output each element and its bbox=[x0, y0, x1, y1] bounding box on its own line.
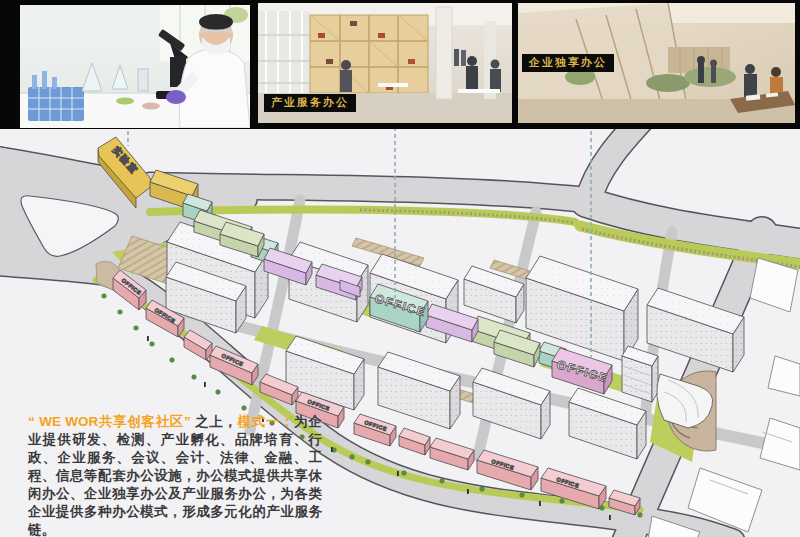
description-highlight-mode: 模式一： bbox=[238, 414, 295, 429]
glove bbox=[166, 90, 186, 104]
wooden-shelf-unit bbox=[310, 15, 428, 93]
greenery bbox=[646, 74, 690, 92]
service-office-label: 产业服务办公 bbox=[264, 94, 356, 112]
test-tube-rack bbox=[28, 87, 84, 121]
service-office-photo: 产业服务办公 bbox=[258, 3, 512, 123]
page: 实验室 bbox=[0, 0, 800, 537]
description-text: “ WE WOR共享创客社区” 之上，模式一：为企业提供研发、检测、产业孵化、品… bbox=[28, 413, 322, 537]
photo-band: 产业服务办公 企业独享办公 bbox=[0, 0, 800, 129]
exclusive-office-photo: 企业独享办公 bbox=[518, 3, 795, 123]
description-connector: 之上， bbox=[191, 414, 238, 429]
laboratory-photo bbox=[20, 5, 250, 128]
column bbox=[436, 7, 452, 99]
exclusive-office-label: 企业独享办公 bbox=[522, 54, 614, 72]
description-highlight-community: “ WE WOR共享创客社区” bbox=[28, 414, 191, 429]
description-body: 为企业提供研发、检测、产业孵化、品牌培育、行政、企业服务、会议、会计、法律、金融… bbox=[28, 414, 322, 537]
